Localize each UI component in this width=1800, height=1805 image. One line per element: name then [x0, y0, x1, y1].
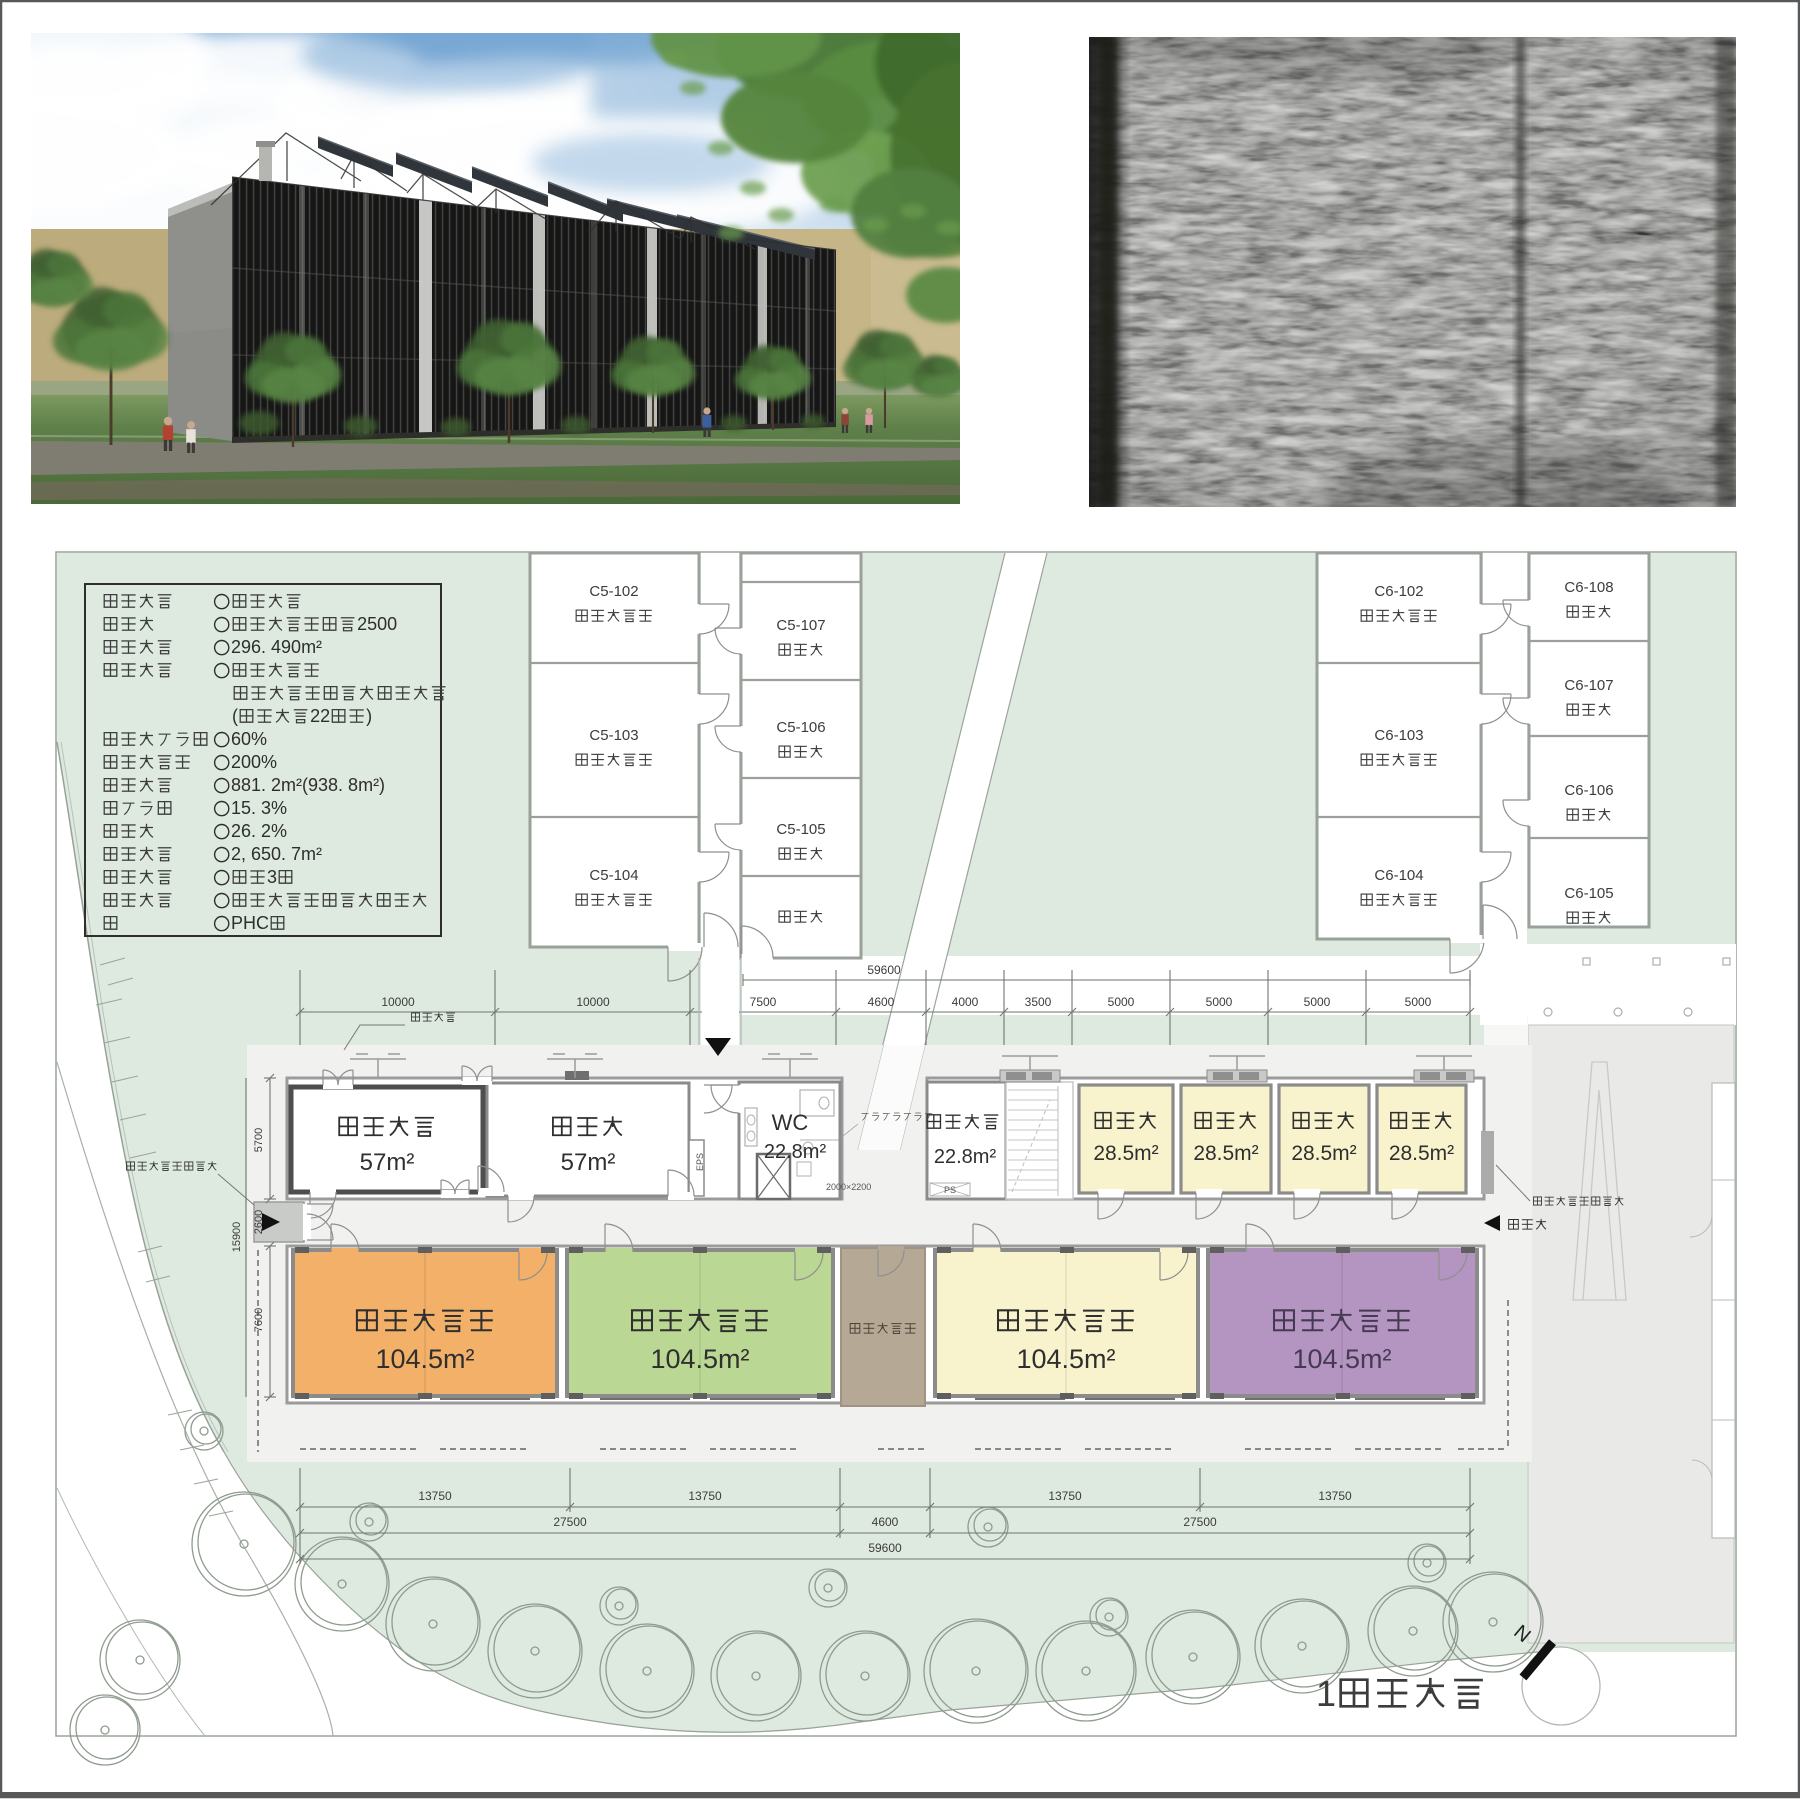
- svg-text:C5-102: C5-102: [589, 583, 638, 600]
- svg-text:C5-106: C5-106: [776, 719, 825, 736]
- svg-text:57m²: 57m²: [360, 1149, 415, 1176]
- svg-text:C5-105: C5-105: [776, 821, 825, 838]
- svg-text:WC: WC: [772, 1110, 809, 1135]
- svg-text:2500: 2500: [357, 614, 397, 634]
- svg-text:26. 2%: 26. 2%: [231, 821, 287, 841]
- svg-text:59600: 59600: [868, 1541, 902, 1555]
- svg-text:296. 490m²: 296. 490m²: [231, 637, 322, 657]
- svg-text:C6-104: C6-104: [1374, 867, 1423, 884]
- svg-text:): ): [366, 706, 372, 726]
- svg-text:104.5m²: 104.5m²: [1016, 1344, 1115, 1374]
- svg-text:C5-107: C5-107: [776, 617, 825, 634]
- svg-text:C5-104: C5-104: [589, 867, 638, 884]
- svg-text:7500: 7500: [750, 995, 777, 1009]
- svg-text:4000: 4000: [952, 995, 979, 1009]
- svg-text:7600: 7600: [253, 1308, 265, 1332]
- svg-text:13750: 13750: [688, 1489, 722, 1503]
- svg-text:28.5m²: 28.5m²: [1389, 1142, 1454, 1165]
- svg-text:28.5m²: 28.5m²: [1193, 1142, 1258, 1165]
- svg-text:2000×2200: 2000×2200: [826, 1182, 871, 1192]
- svg-text:C6-107: C6-107: [1564, 677, 1613, 694]
- svg-text:3: 3: [267, 867, 277, 887]
- svg-text:27500: 27500: [553, 1515, 587, 1529]
- svg-text:1: 1: [1316, 1673, 1336, 1714]
- svg-text:104.5m²: 104.5m²: [650, 1344, 749, 1374]
- svg-text:27500: 27500: [1183, 1515, 1217, 1529]
- svg-text:22.8m²: 22.8m²: [934, 1146, 997, 1168]
- svg-text:200%: 200%: [231, 752, 277, 772]
- svg-text:22.8m²: 22.8m²: [764, 1141, 827, 1163]
- svg-text:3500: 3500: [1025, 995, 1052, 1009]
- svg-text:59600: 59600: [867, 963, 901, 977]
- svg-text:2600: 2600: [253, 1210, 265, 1234]
- svg-text:104.5m²: 104.5m²: [1292, 1344, 1391, 1374]
- svg-text:13750: 13750: [418, 1489, 452, 1503]
- svg-text:4600: 4600: [872, 1515, 899, 1529]
- svg-text:C6-102: C6-102: [1374, 583, 1423, 600]
- svg-text:2, 650. 7m²: 2, 650. 7m²: [231, 844, 322, 864]
- svg-text:5000: 5000: [1405, 995, 1432, 1009]
- svg-text:5700: 5700: [253, 1128, 265, 1152]
- svg-text:PS: PS: [944, 1185, 956, 1195]
- svg-text:5000: 5000: [1304, 995, 1331, 1009]
- svg-text:28.5m²: 28.5m²: [1291, 1142, 1356, 1165]
- svg-text:5000: 5000: [1206, 995, 1233, 1009]
- svg-text:104.5m²: 104.5m²: [375, 1344, 474, 1374]
- svg-text:13750: 13750: [1318, 1489, 1352, 1503]
- svg-text:881. 2m²(938. 8m²): 881. 2m²(938. 8m²): [231, 775, 385, 795]
- svg-text:(: (: [232, 706, 238, 726]
- svg-text:22: 22: [310, 706, 330, 726]
- svg-text:15. 3%: 15. 3%: [231, 798, 287, 818]
- svg-text:10000: 10000: [576, 995, 610, 1009]
- svg-text:EPS: EPS: [695, 1153, 705, 1171]
- svg-text:60%: 60%: [231, 729, 267, 749]
- svg-text:15900: 15900: [231, 1222, 243, 1253]
- svg-text:4600: 4600: [868, 995, 895, 1009]
- svg-text:57m²: 57m²: [561, 1149, 616, 1176]
- svg-text:C6-103: C6-103: [1374, 727, 1423, 744]
- svg-text:PHC: PHC: [231, 913, 269, 933]
- svg-text:5000: 5000: [1108, 995, 1135, 1009]
- svg-text:28.5m²: 28.5m²: [1093, 1142, 1158, 1165]
- svg-text:13750: 13750: [1048, 1489, 1082, 1503]
- svg-text:C6-106: C6-106: [1564, 782, 1613, 799]
- svg-text:C5-103: C5-103: [589, 727, 638, 744]
- svg-text:10000: 10000: [381, 995, 415, 1009]
- svg-text:C6-108: C6-108: [1564, 579, 1613, 596]
- svg-text:C6-105: C6-105: [1564, 885, 1613, 902]
